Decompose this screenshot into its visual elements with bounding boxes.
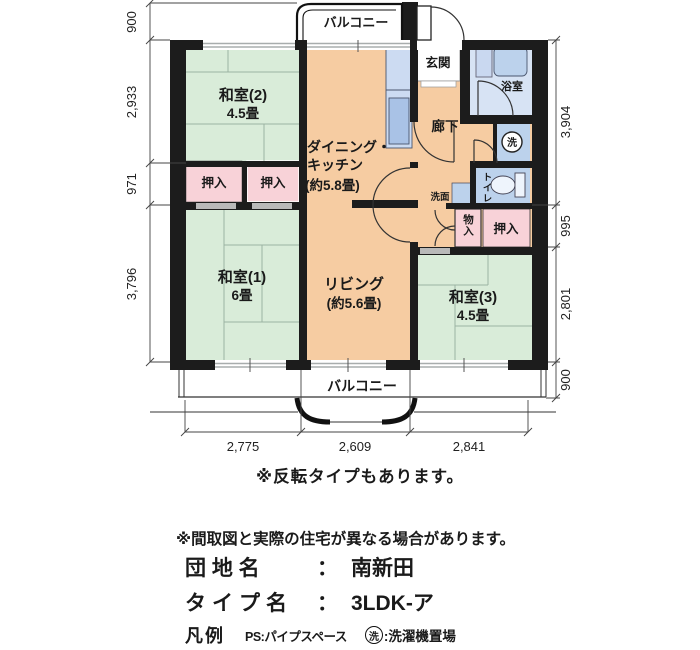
laundry-machine-symbol: 洗 (502, 132, 522, 152)
toilet-bowl (491, 176, 515, 194)
living-name: リビング (324, 275, 384, 293)
dim-right-3: 900 (558, 369, 573, 391)
balcony-top: バルコニー (297, 4, 402, 40)
balcony-bottom-label: バルコニー (327, 378, 397, 394)
dk-name-line1: ダイニング・ (307, 139, 391, 155)
balcony-side-wall (402, 2, 418, 40)
estate-name-colon: ： (317, 552, 351, 582)
type-name-label: タイプ名 (185, 587, 317, 617)
note-reverse-type: ※反転タイプもあります。 (150, 463, 570, 487)
balcony-curve (297, 398, 330, 422)
note-disclaimer: ※間取図と実際の住宅が異なる場合があります。 (176, 527, 515, 549)
estate-name-value: 南新田 (351, 552, 414, 582)
closet-right-label: 押入 (493, 221, 519, 236)
storage-label: 物入 (462, 213, 474, 237)
washitsu2-size: 4.5畳 (227, 106, 260, 121)
closet-top-right-label: 押入 (260, 175, 286, 190)
dk-name-line2: キッチン (307, 157, 363, 173)
dim-right-1: 995 (558, 215, 573, 237)
toilet-label: トイレ (481, 172, 493, 204)
laundry-symbol-label: 洗 (507, 136, 517, 149)
laundry-circle-icon: 洗 (365, 626, 383, 644)
genkan-step (421, 81, 456, 87)
dim-bottom-0: 2,775 (227, 439, 260, 454)
washitsu1-name: 和室(1) (218, 268, 266, 286)
floor-plan-page: { "plan": { "balcony_top_label": "バルコニー"… (0, 0, 700, 650)
estate-name-label: 団 地 名 (185, 552, 317, 582)
legend: 凡例 PS:パイプスペース 洗 :洗濯機置場 (185, 622, 456, 648)
estate-name-row: 団 地 名 ： 南新田 (185, 552, 414, 582)
fusuma-washitsu3 (420, 248, 450, 254)
dim-right-0: 3,904 (558, 106, 573, 139)
fusuma-closet-left (196, 203, 236, 209)
bathroom-label: 浴室 (501, 79, 523, 93)
balcony-top-label: バルコニー (324, 15, 389, 30)
fusuma-closet-right (252, 203, 292, 209)
floor-plan: 洗 バルコニー バルコニー 和室(2) 4.5畳 ダイニング・ キッチン (約5… (0, 0, 700, 460)
balcony-bottom: バルコニー (150, 370, 556, 422)
dim-left-3: 3,796 (124, 268, 139, 301)
legend-ps: PS:パイプスペース (245, 626, 347, 645)
type-name-row: タイプ名 ： 3LDK-ア (185, 587, 434, 617)
legend-title: 凡例 (185, 622, 225, 648)
dim-left-0: 900 (124, 11, 139, 33)
genkan-label: 玄関 (425, 55, 450, 70)
type-name-value: 3LDK-ア (351, 587, 434, 617)
type-name-colon: ： (317, 587, 351, 617)
washstand-label: 洗面 (430, 191, 450, 203)
dim-left-1: 2,933 (124, 86, 139, 119)
living-size: (約5.6畳) (327, 295, 382, 311)
dim-bottom-1: 2,609 (339, 439, 372, 454)
entrance-door (417, 6, 464, 40)
dim-left-2: 971 (124, 173, 139, 195)
toilet-tank (515, 173, 525, 197)
washitsu3-name: 和室(3) (449, 288, 497, 306)
hallway-label: 廊下 (432, 118, 459, 134)
washitsu2-name: 和室(2) (219, 86, 267, 104)
floor-plan-svg: 洗 バルコニー バルコニー 和室(2) 4.5畳 ダイニング・ キッチン (約5… (0, 0, 700, 460)
bath-washing-area (476, 47, 492, 77)
dk-size: (約5.8畳) (305, 177, 360, 193)
dim-bottom-2: 2,841 (453, 439, 486, 454)
bathtub (494, 47, 527, 76)
legend-laundry-text: :洗濯機置場 (384, 625, 456, 645)
closet-top-left-label: 押入 (201, 175, 227, 190)
kitchen-sink (389, 98, 409, 144)
legend-laundry: 洗 :洗濯機置場 (365, 625, 456, 645)
washitsu3-size: 4.5畳 (457, 308, 490, 323)
dim-right-2: 2,801 (558, 288, 573, 321)
washitsu1-size: 6畳 (231, 288, 253, 303)
